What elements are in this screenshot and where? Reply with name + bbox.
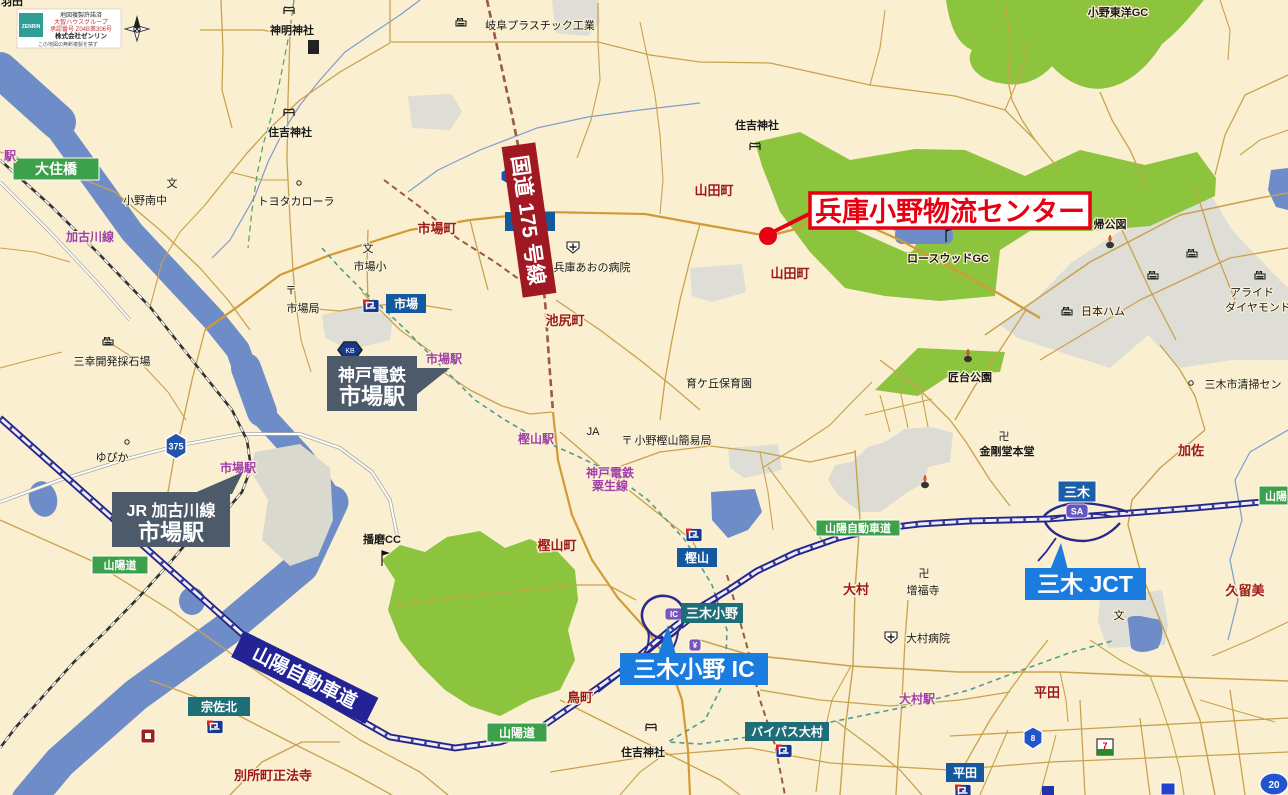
svg-text:樫山: 樫山 — [685, 550, 709, 565]
svg-text:育ケ丘保育園: 育ケ丘保育園 — [686, 376, 752, 390]
svg-text:山田町: 山田町 — [770, 266, 809, 281]
svg-text:播磨CC: 播磨CC — [363, 532, 401, 546]
svg-text:市場小: 市場小 — [354, 259, 387, 273]
svg-text:駅: 駅 — [3, 149, 17, 163]
svg-text:大村: 大村 — [843, 582, 869, 597]
svg-text:〒: 〒 — [286, 285, 297, 297]
svg-text:市場: 市場 — [394, 296, 418, 311]
svg-text:大村病院: 大村病院 — [906, 631, 950, 645]
svg-text:帰公図: 帰公図 — [1094, 217, 1127, 231]
svg-text:20: 20 — [1268, 780, 1280, 791]
svg-text:ゆぴか: ゆぴか — [96, 451, 129, 464]
svg-text:加古川線: 加古川線 — [65, 229, 114, 244]
svg-text:市場駅: 市場駅 — [220, 460, 257, 475]
svg-text:日本ハム: 日本ハム — [1081, 304, 1125, 318]
svg-text:鳥町: 鳥町 — [567, 690, 593, 705]
svg-text:三木 JCT: 三木 JCT — [1037, 571, 1133, 597]
svg-text:¥: ¥ — [693, 641, 698, 650]
svg-text:文: 文 — [167, 176, 178, 190]
svg-text:375: 375 — [168, 442, 183, 452]
svg-text:バイパス大村: バイパス大村 — [751, 724, 823, 739]
svg-text:市場駅: 市場駅 — [426, 351, 463, 366]
svg-text:兵庫小野物流センター: 兵庫小野物流センター — [815, 197, 1085, 227]
svg-text:卍: 卍 — [999, 430, 1010, 443]
svg-text:神戸電鉄: 神戸電鉄 — [338, 365, 406, 385]
svg-text:ダイヤモンド: ダイヤモンド — [1225, 300, 1288, 314]
svg-text:山陽: 山陽 — [1265, 489, 1287, 503]
svg-text:金剛堂本堂: 金剛堂本堂 — [979, 444, 1035, 458]
svg-text:岐阜プラスチック工業: 岐阜プラスチック工業 — [485, 19, 595, 32]
svg-text:市場駅: 市場駅 — [138, 520, 204, 545]
svg-text:平田: 平田 — [1034, 685, 1060, 700]
svg-text:增福寺: 增福寺 — [907, 583, 940, 597]
svg-text:市場局: 市場局 — [287, 301, 320, 315]
svg-text:山陽自動車道: 山陽自動車道 — [825, 521, 891, 535]
svg-text:住吉神社: 住吉神社 — [621, 745, 665, 759]
svg-text:大村駅: 大村駅 — [899, 691, 936, 706]
svg-text:樫山町: 樫山町 — [537, 538, 576, 553]
svg-text:住吉神社: 住吉神社 — [268, 125, 312, 139]
svg-text:JA: JA — [587, 426, 601, 438]
svg-text:文: 文 — [363, 241, 374, 255]
svg-text:別所町正法寺: 別所町正法寺 — [233, 768, 312, 783]
svg-text:三木: 三木 — [1064, 485, 1091, 500]
svg-text:羽田: 羽田 — [1, 0, 23, 8]
svg-text:三幸開発採石場: 三幸開発採石場 — [74, 354, 151, 368]
svg-text:山陽道: 山陽道 — [499, 725, 535, 740]
svg-text:宗佐北: 宗佐北 — [201, 699, 237, 714]
svg-text:アライド: アライド — [1230, 287, 1274, 299]
svg-text:株式会社ゼンリン: 株式会社ゼンリン — [55, 31, 108, 40]
svg-text:三木小野 IC: 三木小野 IC — [633, 656, 754, 682]
svg-text:SA: SA — [1071, 507, 1084, 517]
svg-text:大智ハウスグループ: 大智ハウスグループ — [54, 18, 108, 26]
svg-text:小野南中: 小野南中 — [123, 194, 167, 207]
svg-text:久留美: 久留美 — [1225, 583, 1265, 598]
svg-text:加佐: 加佐 — [1177, 443, 1204, 458]
svg-text:神戸電鉄: 神戸電鉄 — [586, 465, 634, 480]
svg-text:匠台公園: 匠台公園 — [948, 370, 992, 384]
svg-text:小野東洋GC: 小野東洋GC — [1087, 5, 1149, 19]
svg-text:トヨタカローラ: トヨタカローラ — [258, 195, 335, 208]
svg-text:IC: IC — [670, 610, 678, 619]
svg-text:7: 7 — [1102, 741, 1107, 751]
svg-text:地図複製許諾済: 地図複製許諾済 — [60, 11, 102, 19]
svg-text:卍: 卍 — [919, 567, 930, 580]
svg-text:樫山駅: 樫山駅 — [518, 431, 555, 446]
svg-text:兵庫あおの病院: 兵庫あおの病院 — [554, 260, 631, 274]
svg-text:山陽道: 山陽道 — [104, 558, 137, 572]
svg-text:KB: KB — [345, 348, 355, 355]
svg-text:住吉神社: 住吉神社 — [735, 118, 779, 132]
svg-text:市場駅: 市場駅 — [339, 384, 405, 409]
svg-text:池尻町: 池尻町 — [545, 313, 584, 328]
svg-text:粟生線: 粟生線 — [591, 478, 628, 493]
svg-text:神明神社: 神明神社 — [270, 23, 314, 37]
svg-text:平田: 平田 — [953, 766, 977, 780]
svg-text:〒: 〒 — [622, 435, 633, 447]
svg-text:小野樫山簡易局: 小野樫山簡易局 — [635, 433, 712, 447]
svg-text:ロースウッドGC: ロースウッドGC — [907, 252, 989, 265]
svg-text:ZENRIN: ZENRIN — [22, 24, 41, 30]
svg-text:承認番号 Z04B第306号: 承認番号 Z04B第306号 — [50, 25, 112, 33]
svg-text:文: 文 — [1114, 608, 1125, 622]
svg-text:市場町: 市場町 — [417, 221, 456, 236]
svg-text:大住橋: 大住橋 — [35, 161, 78, 177]
svg-text:山田町: 山田町 — [694, 183, 733, 198]
svg-text:JR 加古川線: JR 加古川線 — [127, 501, 216, 520]
svg-text:この地図の無断複製を禁ず: この地図の無断複製を禁ず — [38, 41, 98, 48]
svg-text:三木小野: 三木小野 — [686, 606, 738, 621]
svg-text:8: 8 — [1031, 734, 1036, 743]
svg-text:三木市清掃セン: 三木市清掃セン — [1205, 377, 1282, 391]
